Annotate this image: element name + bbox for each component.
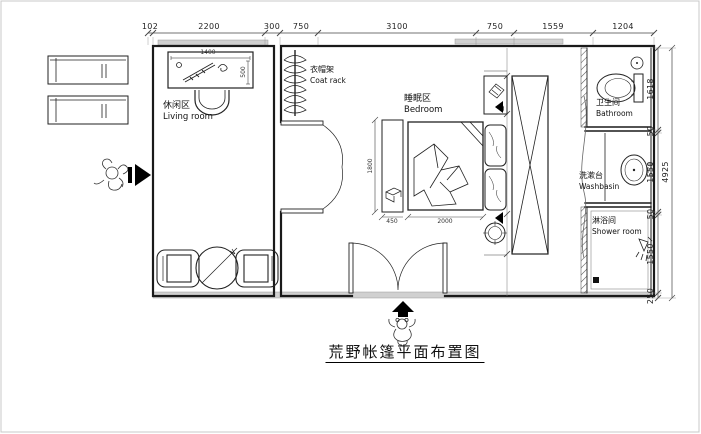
bathroom-divider-walls: [585, 127, 651, 207]
dim-top-102: 102: [142, 23, 158, 31]
door-flag-top-icon: [495, 101, 503, 113]
coat-rack: [284, 50, 306, 116]
dim-right-total-4925: 4925: [662, 161, 670, 183]
wardrobe: [512, 76, 548, 254]
dim-desk-width: 1400: [200, 50, 215, 56]
door-flag-bottom-icon: [495, 212, 503, 224]
dim-top-3100: 3100: [386, 23, 408, 31]
bench: [382, 120, 403, 212]
dim-top-2200: 2200: [198, 23, 220, 31]
label-coat-rack-zh: 衣帽架: [310, 66, 334, 74]
desk-item-icon: [177, 63, 182, 68]
tent-top-window-band: [455, 39, 563, 44]
entry-arrow-right-icon: [128, 164, 151, 186]
label-bedroom-en: Bedroom: [404, 106, 442, 115]
floorplan-page: 102 2200 300 750 3100 750 1559 1204 1618…: [0, 0, 701, 434]
living-room-walls: [153, 46, 274, 296]
drawing-title: 荒野帐篷平面布置图: [325, 345, 484, 363]
box-sketch: [386, 188, 401, 202]
dim-desk-depth: 500: [241, 66, 247, 77]
lounger-top: [48, 56, 128, 84]
bed: [408, 122, 483, 210]
door-swing-arcs: [323, 125, 343, 209]
dim-right-250: 250: [647, 288, 655, 304]
label-bedroom-zh: 睡眠区: [404, 95, 431, 104]
armchair-left: [157, 250, 199, 287]
headboard-pillows: [485, 125, 506, 210]
label-shower-en: Shower room: [592, 228, 642, 236]
bedroom-furniture: [372, 76, 548, 254]
dim-right-50b: 50: [647, 209, 655, 220]
label-bathroom-zh: 卫生间: [596, 99, 620, 107]
bedroom-double-door: [281, 121, 343, 213]
plant-sketch: [489, 84, 504, 98]
teddy-bear-sketch: [389, 318, 415, 345]
lounger-bottom: [48, 96, 128, 124]
dim-right-1550a: 1550: [647, 161, 655, 183]
dim-right-1618: 1618: [647, 78, 655, 100]
left-entrance: [94, 159, 151, 190]
bottom-entrance: [389, 301, 415, 345]
outdoor-loungers: [48, 56, 128, 124]
nightstand-top: [484, 76, 507, 114]
dim-top-300: 300: [264, 23, 280, 31]
main-entrance-double-door: [349, 243, 447, 293]
round-table: [196, 247, 238, 289]
label-washbasin-en: Washbasin: [579, 183, 619, 191]
blanket-sketch: [414, 144, 468, 206]
dim-bed-width: 2000: [437, 219, 452, 225]
dim-bench-width: 450: [386, 219, 397, 225]
flower-sketch: [94, 159, 128, 190]
living-room-furniture: [157, 52, 278, 289]
dim-top-750a: 750: [293, 23, 309, 31]
mouse-sketch: [218, 64, 227, 71]
label-coat-rack-en: Coat rack: [310, 77, 346, 85]
dim-right-1550b: 1550: [647, 243, 655, 265]
label-living-zh: 休闲区: [163, 102, 190, 111]
label-washbasin-zh: 洗漱台: [579, 172, 603, 180]
living-top-window-band: [158, 40, 268, 45]
shower-left-wall-hatch: [581, 207, 587, 293]
dim-bed-length: 1800: [368, 158, 374, 173]
dim-right-50a: 50: [647, 126, 655, 137]
stool: [483, 221, 507, 245]
folded-corner: [461, 122, 483, 146]
dim-top-750b: 750: [487, 23, 503, 31]
door-swing-arcs: [351, 243, 445, 290]
dim-top-1559: 1559: [542, 23, 564, 31]
armchair-right: [236, 250, 278, 287]
ceiling-light-icon: [631, 57, 643, 69]
label-shower-zh: 淋浴间: [592, 217, 616, 225]
label-living-en: Living room: [163, 113, 213, 122]
label-bathroom-en: Bathroom: [596, 110, 633, 118]
floor-drain-icon: [593, 277, 599, 283]
entry-arrow-up-icon: [392, 301, 414, 317]
pen-sketch: [183, 63, 215, 82]
dim-top-1204: 1204: [612, 23, 634, 31]
